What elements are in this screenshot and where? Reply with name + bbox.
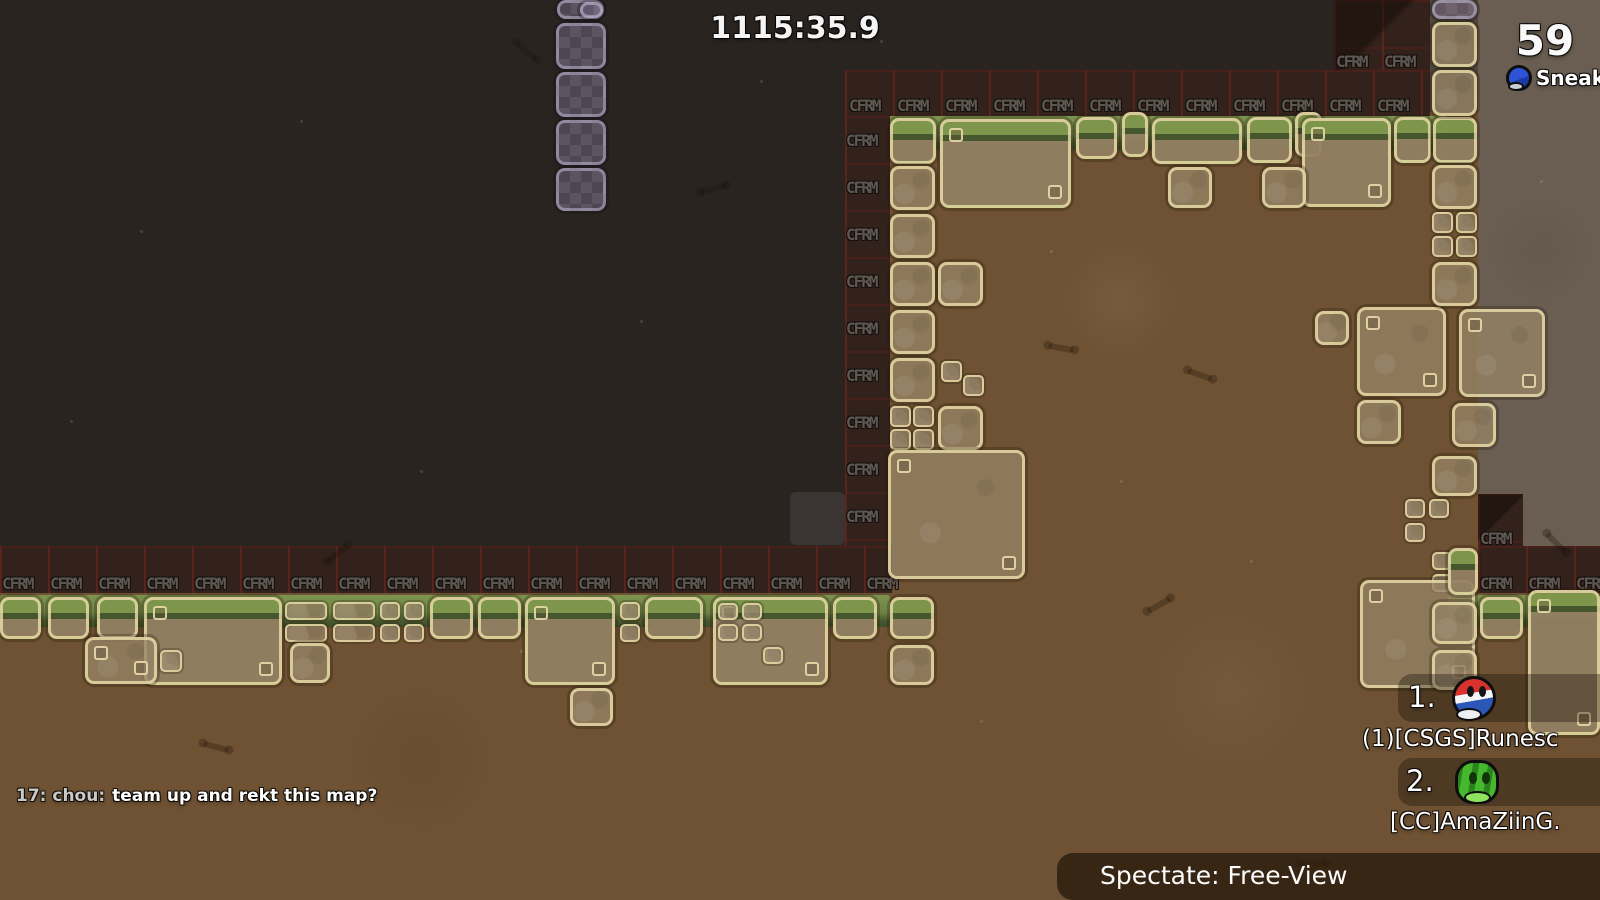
tile-marker-label: CFRM [770,574,801,593]
tile-marker-label: CFRM [1480,574,1511,593]
tile-marker-label: CFRM [722,574,753,593]
spectated-player-name: Sneaky Mum [1536,66,1600,90]
background-speck [1540,180,1543,183]
unhookable-block [580,2,603,18]
small-block [913,429,934,450]
tee-foot [1464,791,1491,804]
dirt-block [890,262,935,306]
tile-marker-label: CFRM [849,96,880,115]
dirt-block [1432,22,1477,67]
tee-eye [1467,686,1474,697]
leaderboard-rank-1: 1. [1408,680,1436,714]
grass-block [1433,117,1477,163]
small-block [1432,212,1453,233]
background-speck [1250,560,1253,563]
small-block [1456,212,1477,233]
tile-marker-label: CFRM [1329,96,1360,115]
tile-marker-label: CFRM [846,507,877,526]
bone-doodad [700,183,727,196]
dirt-slab [1459,309,1545,397]
blue-tee-icon [1506,65,1532,91]
tile-marker-label: CFRM [846,131,877,150]
tile-marker-label: CFRM [530,574,561,593]
background-speck [640,320,643,323]
tile-marker-label: CFRM [674,574,705,593]
small-block [742,603,762,620]
small-block [1456,236,1477,257]
tile-marker-label: CFRM [846,225,877,244]
dirt-slab [1357,307,1446,396]
small-block [620,602,640,620]
game-viewport[interactable]: CFRMCFRMCFRMCFRMCFRMCFRMCFRMCFRMCFRMCFRM… [0,0,1600,900]
dirt-block [890,214,935,258]
dirt-block [890,310,935,354]
unhookable-block [556,168,606,211]
red-blue-tee-icon [1452,676,1496,720]
grass-block [890,597,934,639]
tile-marker-label: CFRM [290,574,321,593]
background-speck [760,80,763,83]
small-block [620,624,640,642]
small-block [941,361,962,382]
background-speck [520,650,523,653]
small-block [890,429,911,450]
tile-marker-label: CFRM [846,366,877,385]
small-block [404,624,424,642]
dirt-block [1432,165,1477,209]
tile-marker-label: CFRM [1377,96,1408,115]
dirt-block [290,643,330,683]
unhookable-block [556,120,606,165]
tile-marker-label: CFRM [434,574,465,593]
dirt-block [1432,456,1477,496]
grass-block [833,597,877,639]
background-speck [300,120,303,123]
small-block [380,624,400,642]
tee-foot [1456,708,1482,721]
tile-marker-label: CFRM [194,574,225,593]
dirt-block [938,406,983,450]
tile-marker-label: CFRM [897,96,928,115]
small-block [333,602,375,620]
small-block [160,650,182,672]
tile-marker-label: CFRM [1089,96,1120,115]
background-speck [140,230,143,233]
tile-marker-label: CFRM [818,574,849,593]
tile-marker-label: CFRM [242,574,273,593]
tile-marker-label: CFRM [50,574,81,593]
background-speck [1120,480,1123,483]
grass-slab [940,119,1071,208]
tile-marker-label: CFRM [846,178,877,197]
grass-block [645,597,703,639]
tile-marker-label: CFRM [1185,96,1216,115]
unhookable-block [1432,0,1477,19]
tile-marker-label: CFRM [386,574,417,593]
dirt-slab [85,637,157,684]
green-cat-tee-icon [1455,760,1499,804]
small-block [718,624,738,641]
tile-marker-label: CFRM [1041,96,1072,115]
ghost-tile [790,492,845,545]
small-block [1432,236,1453,257]
tee-eye [1482,772,1490,784]
background-speck [1050,250,1053,253]
small-block [890,406,911,427]
grass-slab [1302,118,1391,207]
tile-marker-label: CFRM [945,96,976,115]
tile-marker-label: CFRM [846,319,877,338]
dirt-block [1315,311,1349,345]
small-block [1429,499,1449,518]
tile-marker-label: CFRM [1384,52,1415,71]
grass-block [97,597,138,639]
tile-marker-label: CFRM [338,574,369,593]
dirt-block [1432,602,1477,644]
tile-marker-label: CFRM [993,96,1024,115]
small-block [718,603,738,620]
unhookable-block [556,72,606,117]
tee-foot [1508,82,1524,91]
tile-marker-label: CFRM [626,574,657,593]
tile-marker-label: CFRM [1336,52,1367,71]
dirt-block [890,645,934,685]
grass-block [48,597,89,639]
small-block [913,406,934,427]
background-speck [420,470,423,473]
grass-block [1076,117,1117,159]
race-timer: 1115:35.9 [700,11,890,46]
dirt-block [1432,262,1477,306]
small-block [742,624,762,641]
dirt-block [1432,70,1477,116]
grass-block [0,597,41,639]
small-block [404,602,424,620]
leaderboard-name-1: (1)[CSGS]Runesc [1362,726,1600,752]
leaderboard-name-2: [CC]AmaZiinG. [1390,809,1600,835]
dirt-block [1452,403,1496,447]
grass-block [890,118,936,164]
dirt-block [890,166,935,210]
tile-marker-label: CFRM [146,574,177,593]
tile-marker-label: CFRM [98,574,129,593]
grass-block [1448,548,1478,595]
chat-message: team up and rekt this map? [112,786,377,806]
background-speck [980,720,983,723]
bone-doodad [514,40,538,61]
small-block [963,375,984,396]
tile-marker-label: CFRM [2,574,33,593]
map-layer: CFRMCFRMCFRMCFRMCFRMCFRMCFRMCFRMCFRMCFRM… [0,0,1600,900]
small-block [1405,523,1425,542]
spectated-player-score: 59 [1512,16,1578,65]
dirt-block [890,358,935,402]
tile-marker-label: CFRM [1480,529,1511,548]
dirt-block [570,688,613,726]
grass-block [1152,118,1242,164]
small-block [1405,499,1425,518]
grass-slab [525,597,615,685]
tile-marker-label: CFRM [846,272,877,291]
tile-marker-label: CFRM [1233,96,1264,115]
grass-block [1480,597,1523,639]
dirt-slab [888,450,1025,579]
unhookable-block [556,23,606,69]
small-block [285,602,327,620]
background-speck [70,420,73,423]
dirt-block [1168,167,1212,208]
dirt-block [1262,167,1306,208]
small-block [380,602,400,620]
chat-line: 17: chou:team up and rekt this map? [16,786,377,806]
small-block [763,647,783,664]
chat-author: 17: chou: [16,786,105,806]
small-block [285,624,327,642]
tile-marker-label: CFRM [482,574,513,593]
dirt-block [1357,400,1401,444]
grass-block [478,597,521,639]
small-block [333,624,375,642]
grass-block [1122,112,1148,157]
tile-marker-label: CFRM [846,460,877,479]
dirt-block [938,262,983,306]
grass-block [1394,117,1431,163]
grass-block [430,597,473,639]
leaderboard-rank-2: 2. [1406,764,1434,798]
tee-eye [1479,686,1486,697]
spectate-mode-bar[interactable]: Spectate: Free-View [1057,853,1600,900]
grass-block [1247,117,1292,163]
tee-eye [1469,772,1477,784]
tile-marker-label: CFRM [846,413,877,432]
tile-marker-label: CFRM [578,574,609,593]
spectate-mode-label: Spectate: Free-View [1100,861,1347,890]
spectated-player-tag: Sneaky Mum [1506,65,1600,91]
